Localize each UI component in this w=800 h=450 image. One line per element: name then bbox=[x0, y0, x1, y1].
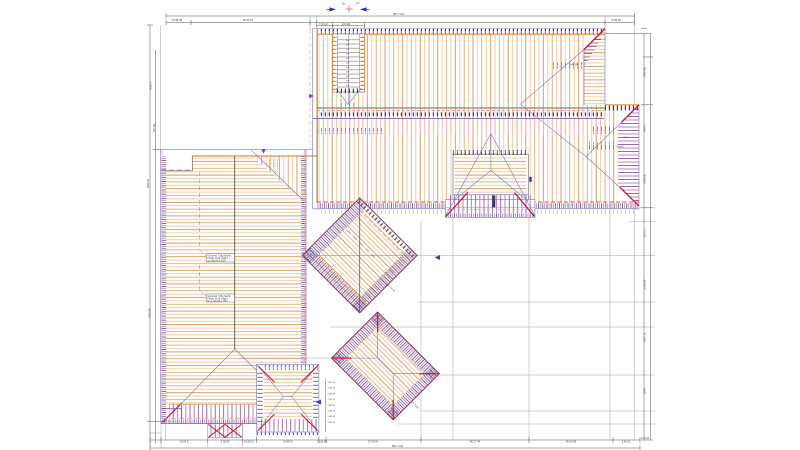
svg-text:40.06.08: 40.06.08 bbox=[566, 440, 577, 444]
svg-text:Gerberstt 7.08g Nachb: Gerberstt 7.08g Nachb bbox=[208, 254, 232, 257]
svg-text:1.4E.05: 1.4E.05 bbox=[328, 382, 336, 384]
svg-text:1048.08: 1048.08 bbox=[172, 18, 183, 22]
svg-text:8.70.C: 8.70.C bbox=[643, 229, 647, 237]
svg-text:4.4E.06: 4.4E.06 bbox=[328, 388, 336, 390]
svg-text:5407.71: 5407.71 bbox=[643, 332, 647, 342]
svg-text:68.7 LM: 68.7 LM bbox=[392, 444, 403, 448]
svg-text:457.06: 457.06 bbox=[152, 124, 156, 132]
svg-text:46.17.44: 46.17.44 bbox=[470, 440, 481, 444]
svg-text:0.70.48: 0.70.48 bbox=[641, 437, 650, 440]
svg-text:5.60.11: 5.60.11 bbox=[622, 440, 631, 444]
svg-text:148.38: 148.38 bbox=[570, 64, 578, 67]
svg-text:98.7 LM: 98.7 LM bbox=[393, 12, 404, 16]
svg-text:2102.08: 2102.08 bbox=[643, 279, 647, 289]
svg-text:16.04.0: 16.04.0 bbox=[180, 440, 189, 444]
svg-text:7602.08: 7602.08 bbox=[643, 174, 647, 184]
svg-text:5049.7: 5049.7 bbox=[643, 124, 647, 132]
svg-text:4.4E.06: 4.4E.06 bbox=[328, 405, 336, 407]
svg-text:3402.4E: 3402.4E bbox=[643, 67, 647, 77]
svg-text:4.4E.06: 4.4E.06 bbox=[328, 393, 336, 395]
svg-text:4506.2: 4506.2 bbox=[149, 82, 153, 90]
svg-text:7.104.4E: 7.104.4E bbox=[317, 440, 328, 444]
svg-text:4/4 10E: 4/4 10E bbox=[342, 23, 351, 26]
svg-text:3L49.01: 3L49.01 bbox=[283, 440, 293, 444]
svg-text:8.047: 8.047 bbox=[643, 387, 647, 394]
svg-text:4605.08: 4605.08 bbox=[148, 308, 152, 318]
svg-text:1.2E.11: 1.2E.11 bbox=[328, 399, 336, 401]
svg-text:2m: 2m bbox=[342, 3, 345, 6]
svg-text:4.05.04: 4.05.04 bbox=[221, 440, 230, 444]
svg-text:7.30B: 7.30B bbox=[622, 137, 628, 139]
svg-text:4605.04: 4605.04 bbox=[146, 178, 150, 188]
svg-text:ca 100x14 p. B16: ca 100x14 p. B16 bbox=[208, 260, 227, 262]
svg-text:51.08.11: 51.08.11 bbox=[244, 440, 254, 444]
svg-text:B ca 100x14 p. B16: B ca 100x14 p. B16 bbox=[208, 301, 229, 303]
svg-text:4.4E.06: 4.4E.06 bbox=[328, 411, 336, 413]
svg-text:27.40.04: 27.40.04 bbox=[368, 440, 379, 444]
svg-text:*34.60*: *34.60* bbox=[616, 146, 624, 149]
svg-text:Gerberstt 7.08g Nachb: Gerberstt 7.08g Nachb bbox=[208, 295, 232, 298]
svg-text:4.4E.06: 4.4E.06 bbox=[328, 416, 336, 418]
svg-text:*5.08.4E: *5.08.4E bbox=[611, 18, 621, 22]
svg-text:7.32 LM: 7.32 LM bbox=[319, 23, 328, 26]
svg-text:3L45.10: 3L45.10 bbox=[243, 18, 254, 22]
svg-text:1.4E.05: 1.4E.05 bbox=[328, 422, 336, 424]
